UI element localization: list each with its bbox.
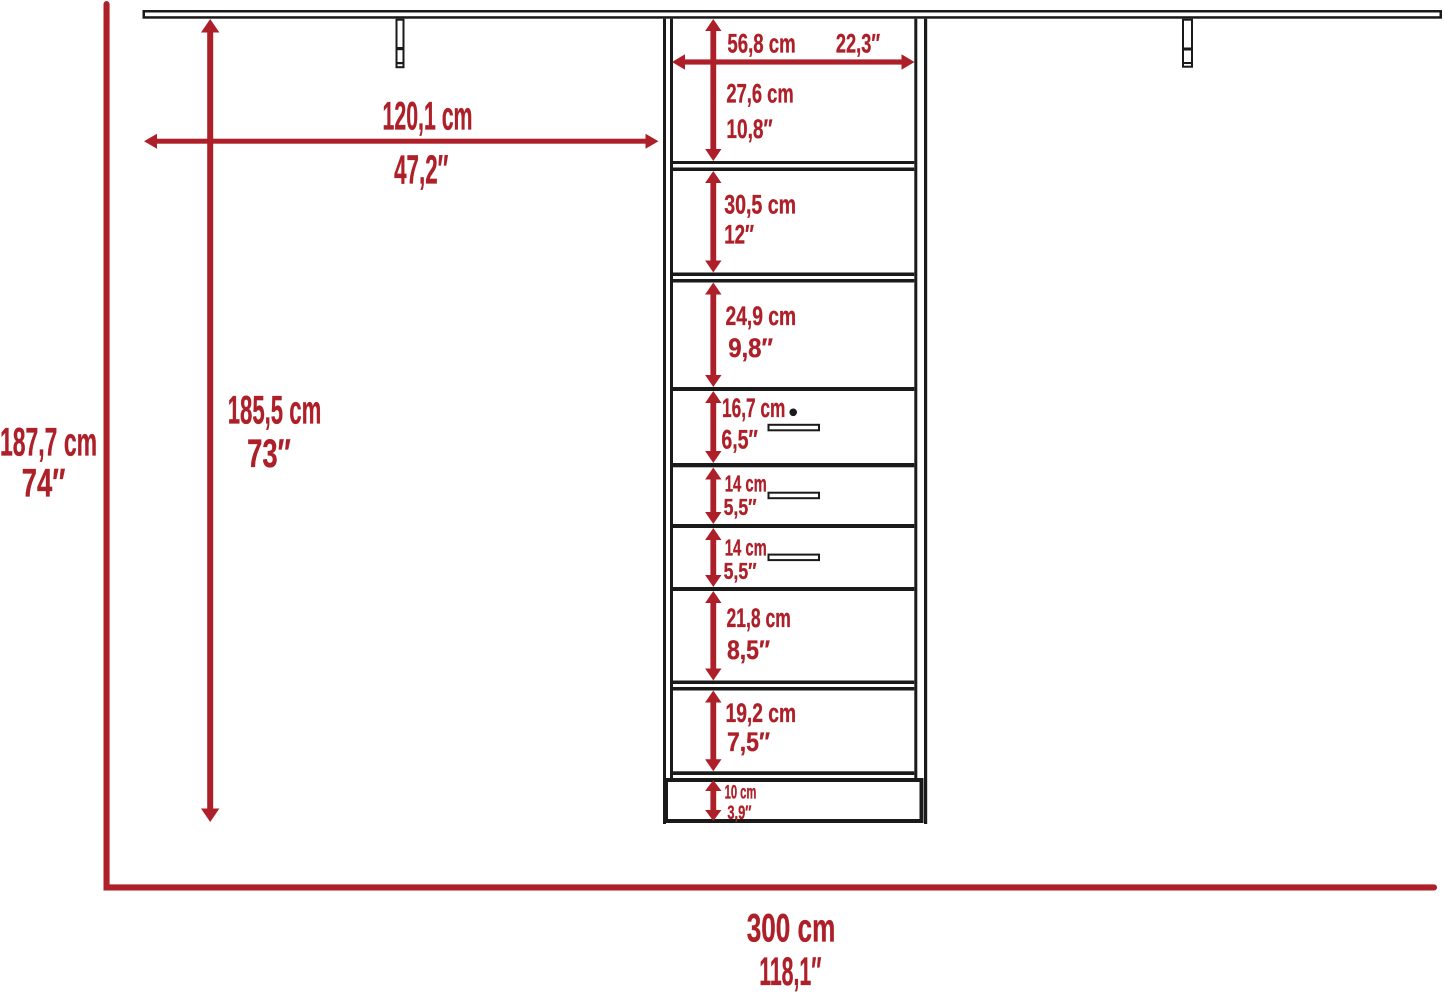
svg-text:120,1 cm: 120,1 cm bbox=[383, 95, 473, 139]
svg-text:21,8 cm: 21,8 cm bbox=[727, 603, 791, 633]
svg-text:5,5″: 5,5″ bbox=[724, 558, 757, 584]
svg-text:9,8″: 9,8″ bbox=[728, 333, 773, 363]
svg-text:27,6 cm: 27,6 cm bbox=[726, 79, 793, 109]
svg-text:19,2 cm: 19,2 cm bbox=[726, 698, 797, 728]
svg-text:185,5 cm: 185,5 cm bbox=[228, 388, 322, 432]
svg-text:12″: 12″ bbox=[724, 219, 754, 249]
svg-text:187,7 cm: 187,7 cm bbox=[0, 421, 97, 465]
svg-text:74″: 74″ bbox=[22, 462, 66, 506]
svg-text:3,9″: 3,9″ bbox=[727, 803, 751, 824]
svg-text:118,1″: 118,1″ bbox=[759, 950, 821, 994]
svg-text:22,3″: 22,3″ bbox=[836, 28, 880, 58]
svg-text:14 cm: 14 cm bbox=[725, 471, 767, 497]
svg-text:30,5 cm: 30,5 cm bbox=[724, 189, 796, 219]
svg-text:10,8″: 10,8″ bbox=[726, 114, 772, 144]
svg-text:16,7 cm: 16,7 cm bbox=[722, 393, 785, 423]
svg-text:73″: 73″ bbox=[247, 432, 291, 476]
svg-text:7,5″: 7,5″ bbox=[727, 727, 770, 757]
svg-text:47,2″: 47,2″ bbox=[394, 146, 448, 192]
svg-text:14 cm: 14 cm bbox=[725, 534, 767, 560]
svg-text:56,8 cm: 56,8 cm bbox=[727, 28, 795, 58]
svg-text:8,5″: 8,5″ bbox=[727, 635, 770, 665]
svg-text:24,9 cm: 24,9 cm bbox=[726, 301, 797, 331]
svg-text:6,5″: 6,5″ bbox=[721, 424, 758, 454]
svg-text:300 cm: 300 cm bbox=[747, 907, 836, 951]
svg-text:5,5″: 5,5″ bbox=[724, 494, 757, 520]
svg-text:10 cm: 10 cm bbox=[725, 783, 757, 804]
